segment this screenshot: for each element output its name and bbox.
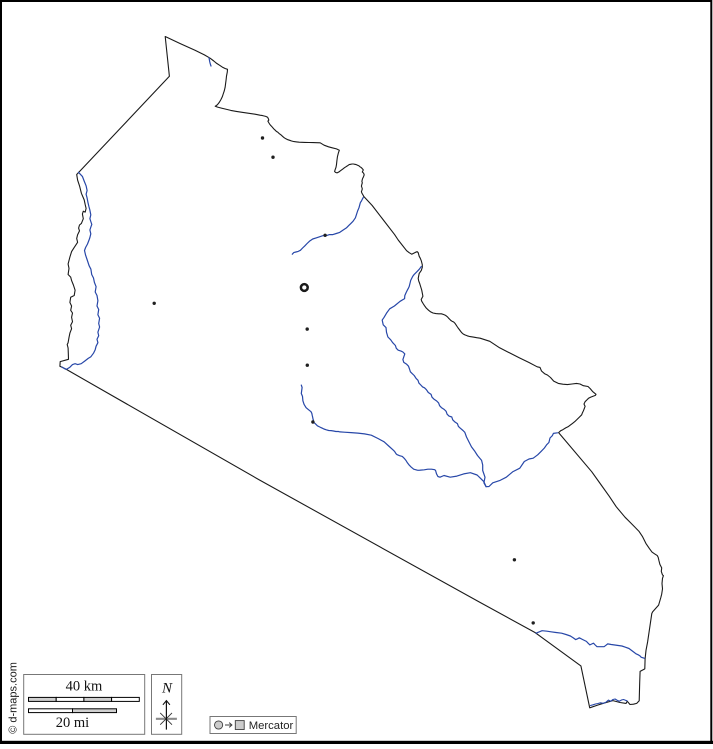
svg-text:© d-maps.com: © d-maps.com xyxy=(7,662,19,734)
svg-text:N: N xyxy=(161,681,173,697)
svg-text:20 mi: 20 mi xyxy=(56,715,89,731)
svg-text:40 km: 40 km xyxy=(66,679,103,695)
svg-text:Mercator: Mercator xyxy=(249,720,294,732)
